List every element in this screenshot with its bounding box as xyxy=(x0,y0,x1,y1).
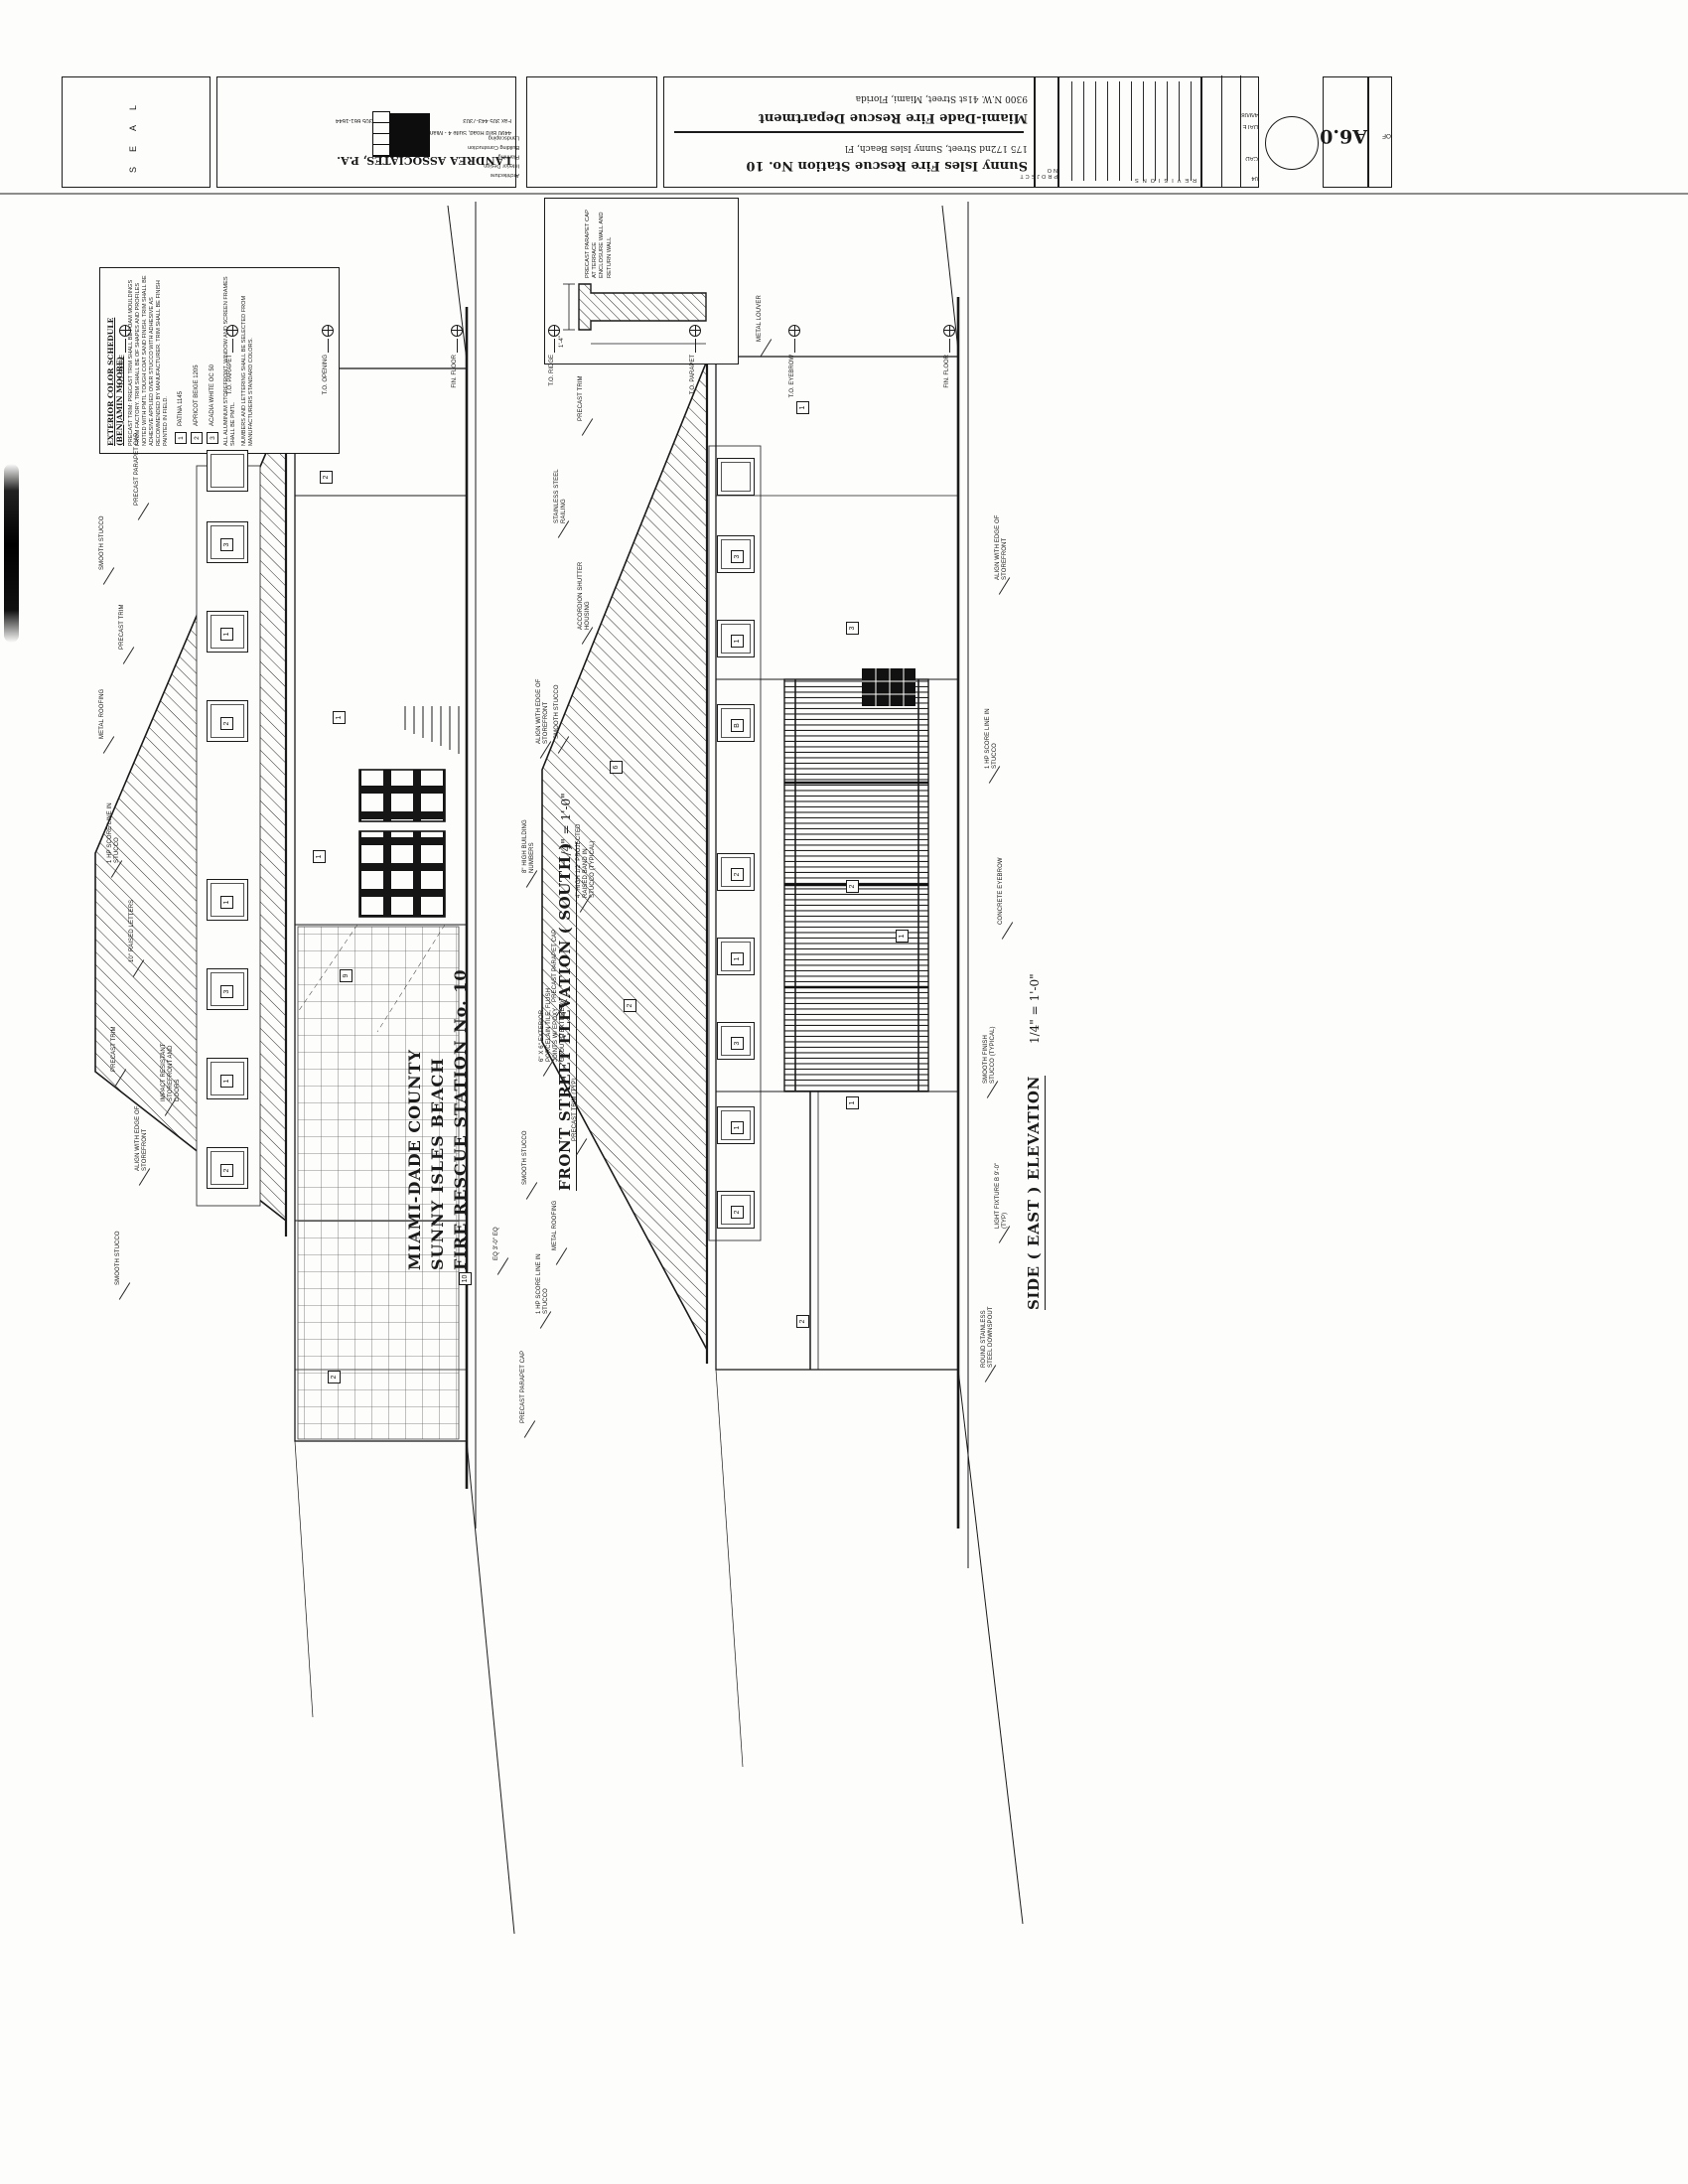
keynote-6: 6 xyxy=(610,761,623,774)
annotation-note: ROUND STAINLESS STEEL DOWNSPOUT xyxy=(981,1292,995,1368)
annotation-note: 4" HIGH 1/2" PROJECTED RAISED BAND IN ST… xyxy=(576,822,597,898)
architectural-sheet: SEAL LANDREA ASSOCIATES, P.A. 4490 Bird … xyxy=(0,0,1688,2184)
level-leader-line xyxy=(554,339,555,353)
annotation-note: SMOOTH STUCCO xyxy=(554,663,561,739)
keynote-2: 2 xyxy=(731,1206,744,1219)
level-label: T.O. EYEBROW xyxy=(789,355,795,442)
annotation-note: PRECAST TRIM (TYP) xyxy=(572,1066,579,1141)
annotation-note: ALIGN WITH EDGE OF STOREFRONT xyxy=(995,505,1009,580)
level-marker: T.O. EYEBROW xyxy=(788,325,801,444)
keynote-1: 1 xyxy=(896,930,909,943)
keynote-2: 2 xyxy=(846,880,859,893)
level-leader-line xyxy=(695,339,696,353)
level-leader-line xyxy=(794,339,795,353)
level-target-icon xyxy=(788,325,800,337)
level-marker: FIN. FLOOR xyxy=(943,325,956,444)
keynote-3: 3 xyxy=(731,550,744,563)
level-target-icon xyxy=(943,325,955,337)
level-target-icon xyxy=(689,325,701,337)
side-elevation-annotations: SIDE ( EAST ) ELEVATION 1/4" = 1'-0" 213… xyxy=(0,0,1688,2184)
annotation-note: 1 HP SCORE LINE IN STUCCO xyxy=(985,693,999,769)
keynote-2: 2 xyxy=(731,868,744,881)
level-label: FIN. FLOOR xyxy=(944,355,950,442)
annotation-note: ACCORDION SHUTTER HOUSING xyxy=(578,554,592,630)
level-marker: T.O. RIDGE xyxy=(548,325,561,444)
side-elevation-scale: 1/4" = 1'-0" xyxy=(1028,973,1042,1044)
annotation-note: SMOOTH FINISH STUCCO (TYPICAL) xyxy=(983,1008,997,1084)
keynote-3: 3 xyxy=(731,1037,744,1050)
scanned-drawing-page: SEAL LANDREA ASSOCIATES, P.A. 4490 Bird … xyxy=(0,0,1688,2184)
window xyxy=(717,458,755,496)
keynote-1: 1 xyxy=(731,952,744,965)
annotation-note: METAL ROOFING xyxy=(552,1175,559,1250)
level-marker: T.O. PARAPET xyxy=(689,325,702,444)
keynote-1: 1 xyxy=(846,1096,859,1109)
annotation-note: CONCRETE EYEBROW xyxy=(998,849,1005,925)
keynote-1: 1 xyxy=(731,1121,744,1134)
level-target-icon xyxy=(548,325,560,337)
annotation-note: PRECAST TRIM xyxy=(578,346,585,421)
annotation-note: STAINLESS STEEL RAILING xyxy=(554,448,568,523)
level-label: T.O. PARAPET xyxy=(690,355,696,442)
annotation-note: PRECAST PARAPET CAP xyxy=(552,927,559,1002)
annotation-note: METAL LOUVER xyxy=(757,266,764,342)
keynote-1: 1 xyxy=(731,635,744,648)
level-leader-line xyxy=(949,339,950,353)
annotation-note: LIGHT FIXTURE B 9'-0" (TYP) xyxy=(995,1153,1009,1229)
keynote-2: 2 xyxy=(796,1315,809,1328)
keynote-B: B xyxy=(731,719,744,732)
keynote-3: 3 xyxy=(846,622,859,635)
side-elevation-title: SIDE ( EAST ) ELEVATION xyxy=(1025,1076,1046,1310)
keynote-2: 2 xyxy=(624,999,636,1012)
level-label: T.O. RIDGE xyxy=(549,355,555,442)
